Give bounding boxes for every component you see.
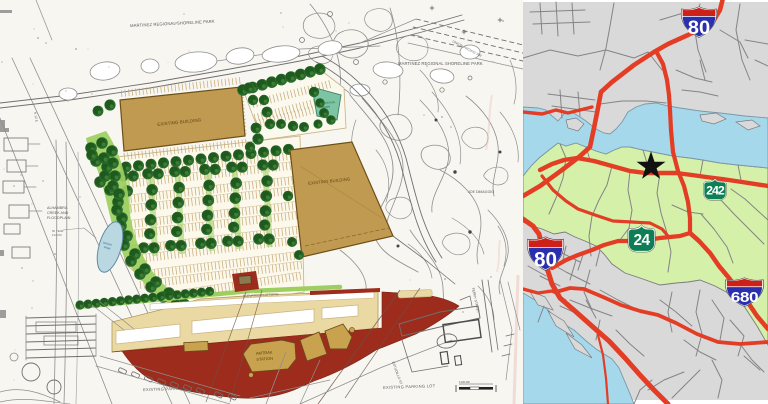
svg-text:FLOODPLAIN: FLOODPLAIN [47, 216, 71, 220]
svg-text:80: 80 [534, 248, 557, 271]
svg-text:680: 680 [731, 290, 759, 306]
svg-text:24: 24 [634, 232, 651, 249]
svg-text:FLOOD: FLOOD [52, 233, 62, 237]
svg-text:242: 242 [706, 184, 725, 197]
svg-text:ALHAMBRA: ALHAMBRA [47, 206, 68, 210]
svg-text:MARTINEZ REGIONAL SHORELINE PA: MARTINEZ REGIONAL SHORELINE PARK [398, 61, 483, 66]
svg-text:0 100 200: 0 100 200 [459, 381, 470, 384]
svg-text:CREEK AND: CREEK AND [47, 211, 69, 215]
svg-text:JOE DiMAGGIO: JOE DiMAGGIO [468, 190, 494, 194]
svg-text:80: 80 [688, 17, 710, 39]
